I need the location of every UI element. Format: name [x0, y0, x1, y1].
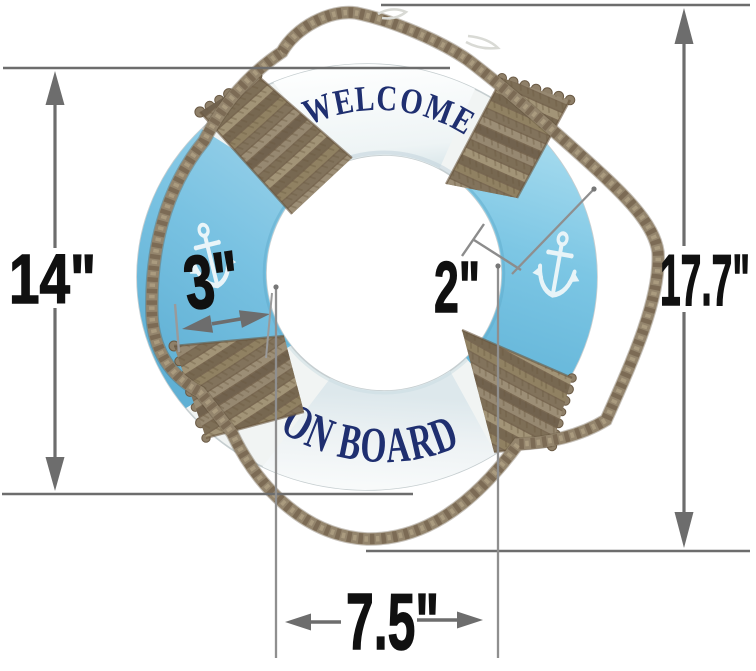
svg-text:7.5": 7.5" — [346, 577, 439, 666]
svg-text:L: L — [354, 79, 376, 120]
svg-text:C: C — [375, 79, 398, 120]
svg-text:3": 3" — [179, 235, 245, 327]
svg-text:17.7": 17.7" — [660, 241, 750, 321]
svg-text:14": 14" — [9, 240, 96, 318]
svg-text:2": 2" — [434, 248, 480, 328]
